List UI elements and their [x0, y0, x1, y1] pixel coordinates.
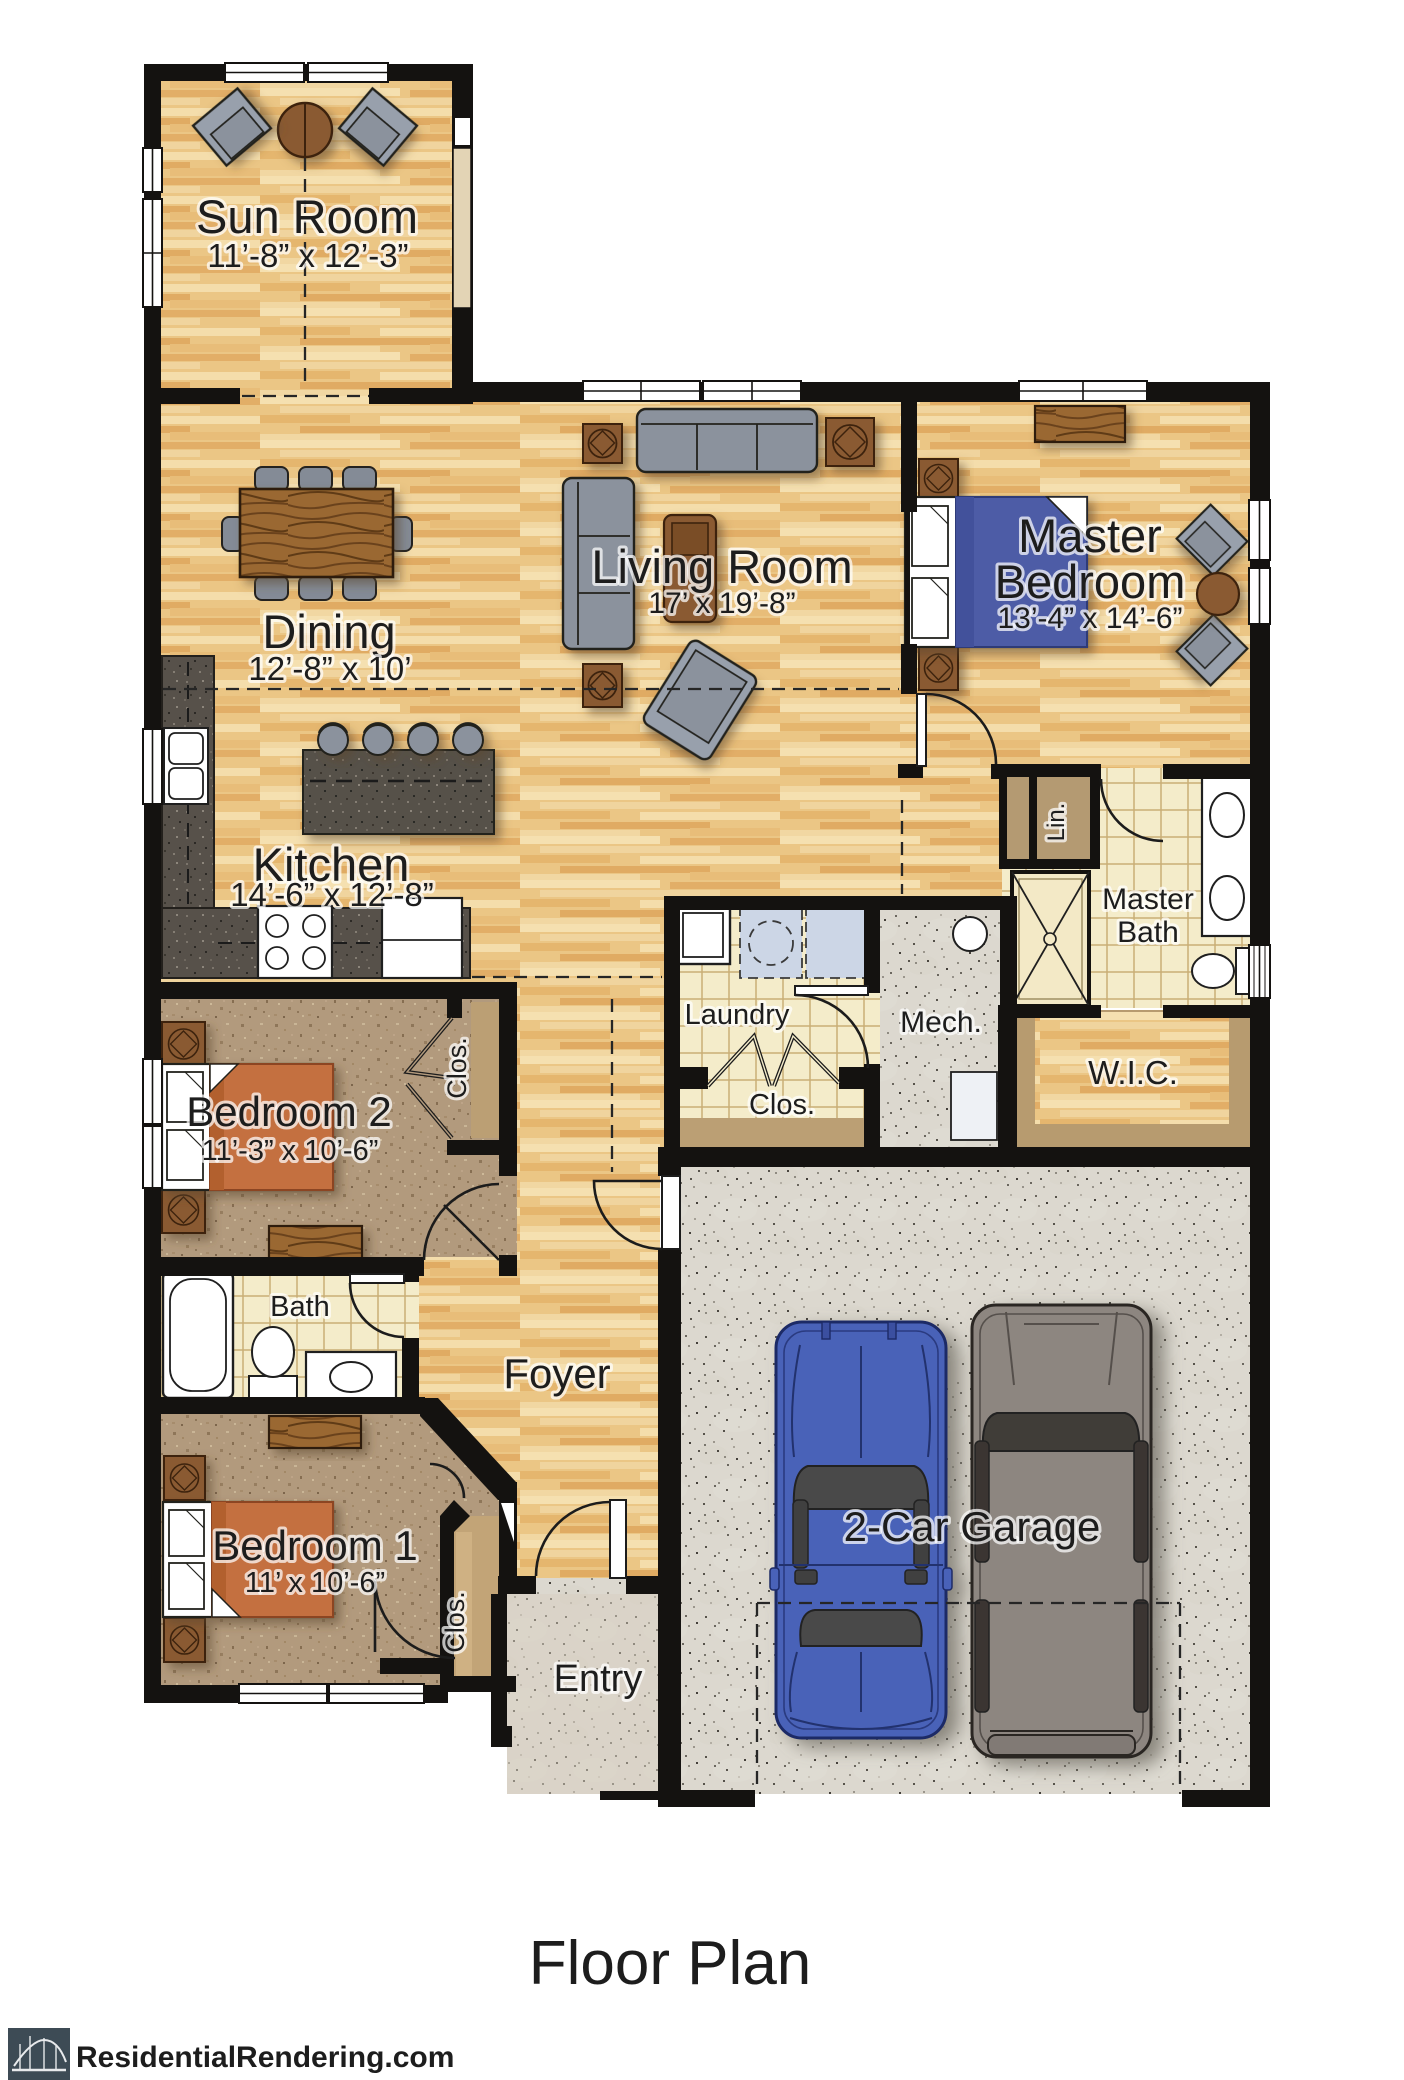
svg-text:Laundry: Laundry	[685, 999, 790, 1031]
svg-text:Bedroom 1: Bedroom 1	[212, 1522, 417, 1569]
svg-text:Foyer: Foyer	[503, 1350, 610, 1397]
svg-text:Bath: Bath	[1117, 916, 1179, 949]
svg-text:Entry: Entry	[554, 1658, 643, 1700]
svg-text:11’-3” x 10’-6”: 11’-3” x 10’-6”	[202, 1135, 379, 1167]
svg-text:Bedroom 2: Bedroom 2	[186, 1088, 391, 1135]
svg-text:11’ x 10’-6”: 11’ x 10’-6”	[245, 1567, 385, 1599]
svg-text:2-Car Garage: 2-Car Garage	[844, 1503, 1101, 1550]
svg-text:Clos.: Clos.	[440, 1591, 470, 1653]
svg-text:17’ x 19’-8”: 17’ x 19’-8”	[648, 587, 795, 620]
svg-text:Master: Master	[1102, 883, 1194, 916]
svg-text:Clos.: Clos.	[442, 1037, 472, 1099]
svg-text:11’-8” x 12’-3”: 11’-8” x 12’-3”	[207, 237, 408, 274]
svg-text:Bedroom: Bedroom	[995, 555, 1186, 608]
svg-text:Floor Plan: Floor Plan	[529, 1929, 812, 1998]
svg-text:Mech.: Mech.	[900, 1006, 982, 1039]
svg-text:13’-4” x 14’-6”: 13’-4” x 14’-6”	[997, 602, 1182, 635]
svg-text:ResidentialRendering.com: ResidentialRendering.com	[76, 2041, 454, 2074]
svg-text:Bath: Bath	[270, 1291, 330, 1323]
svg-text:Sun Room: Sun Room	[196, 190, 418, 243]
svg-text:W.I.C.: W.I.C.	[1088, 1054, 1178, 1091]
svg-text:12’-8” x 10’: 12’-8” x 10’	[248, 650, 411, 687]
svg-text:Lin.: Lin.	[1043, 803, 1070, 842]
svg-text:Living Room: Living Room	[591, 540, 852, 593]
svg-text:14’-6” x 12’-8”: 14’-6” x 12’-8”	[230, 876, 434, 913]
svg-text:Clos.: Clos.	[749, 1089, 815, 1121]
